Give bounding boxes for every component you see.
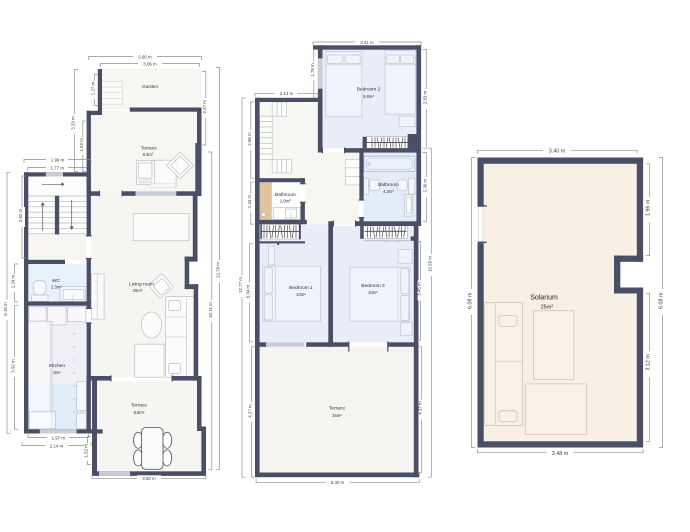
svg-text:5.34 m: 5.34 m [246, 284, 251, 298]
svg-text:5.30 m: 5.30 m [331, 480, 345, 485]
svg-text:Bedroom 1: Bedroom 1 [289, 285, 313, 291]
svg-text:Bedroom 3: Bedroom 3 [361, 283, 385, 289]
svg-text:1.62 m: 1.62 m [79, 138, 84, 152]
svg-text:3.29 m: 3.29 m [71, 116, 76, 130]
svg-text:3.60 m: 3.60 m [138, 54, 152, 59]
svg-text:1.97 m: 1.97 m [52, 435, 66, 440]
svg-text:3.40 m: 3.40 m [549, 148, 566, 154]
svg-text:2.14 m: 2.14 m [50, 443, 64, 448]
svg-text:1.24 m: 1.24 m [11, 274, 16, 288]
svg-text:3.60 m: 3.60 m [142, 476, 156, 481]
svg-text:3.06 m: 3.06 m [143, 61, 157, 66]
svg-text:10.55 m: 10.55 m [427, 256, 432, 272]
svg-text:6.08 m: 6.08 m [659, 292, 665, 309]
svg-text:2.58 m: 2.58 m [247, 132, 252, 146]
svg-text:8.10 m: 8.10 m [3, 302, 8, 316]
svg-text:Kitchen: Kitchen [49, 363, 65, 369]
svg-text:4.37 m: 4.37 m [247, 404, 252, 418]
svg-text:Bedroom 2: Bedroom 2 [357, 87, 381, 93]
svg-text:1.34 m: 1.34 m [247, 194, 252, 208]
svg-text:12.77 m: 12.77 m [238, 277, 243, 293]
svg-text:1.78 m: 1.78 m [310, 63, 315, 77]
svg-text:Terrace: Terrace [131, 403, 147, 409]
svg-text:3.45 m: 3.45 m [417, 282, 422, 296]
svg-text:3.12 m: 3.12 m [646, 354, 652, 371]
svg-text:6.08 m: 6.08 m [468, 292, 474, 309]
svg-text:2.37 m: 2.37 m [202, 100, 207, 114]
svg-text:2.83 m: 2.83 m [422, 90, 427, 104]
svg-text:2.14 m: 2.14 m [280, 91, 294, 96]
svg-text:Terrace: Terrace [141, 146, 157, 152]
svg-text:2.62 m: 2.62 m [18, 208, 23, 222]
svg-text:Solarium: Solarium [530, 295, 558, 302]
svg-text:Bathroom: Bathroom [275, 192, 296, 198]
svg-text:Living room: Living room [129, 282, 154, 288]
svg-text:WC: WC [52, 278, 61, 284]
svg-text:3.48 m: 3.48 m [552, 451, 569, 457]
svg-text:1.96 m: 1.96 m [646, 199, 652, 216]
svg-text:3.92 m: 3.92 m [11, 359, 16, 373]
svg-text:12.78 m: 12.78 m [216, 262, 221, 278]
svg-text:2.30 m: 2.30 m [422, 178, 427, 192]
svg-text:4.37 m: 4.37 m [418, 401, 423, 415]
svg-text:1.77 m: 1.77 m [50, 165, 64, 170]
svg-text:1.96 m: 1.96 m [51, 157, 65, 162]
svg-text:1.27 m: 1.27 m [90, 81, 95, 95]
svg-text:1.52 m: 1.52 m [84, 444, 89, 458]
svg-text:10.11 m: 10.11 m [208, 302, 213, 318]
svg-text:Bathroom: Bathroom [378, 182, 399, 188]
svg-text:Garden: Garden [142, 84, 158, 90]
svg-text:Terrace: Terrace [329, 406, 345, 412]
svg-text:3.41 m: 3.41 m [360, 40, 374, 45]
